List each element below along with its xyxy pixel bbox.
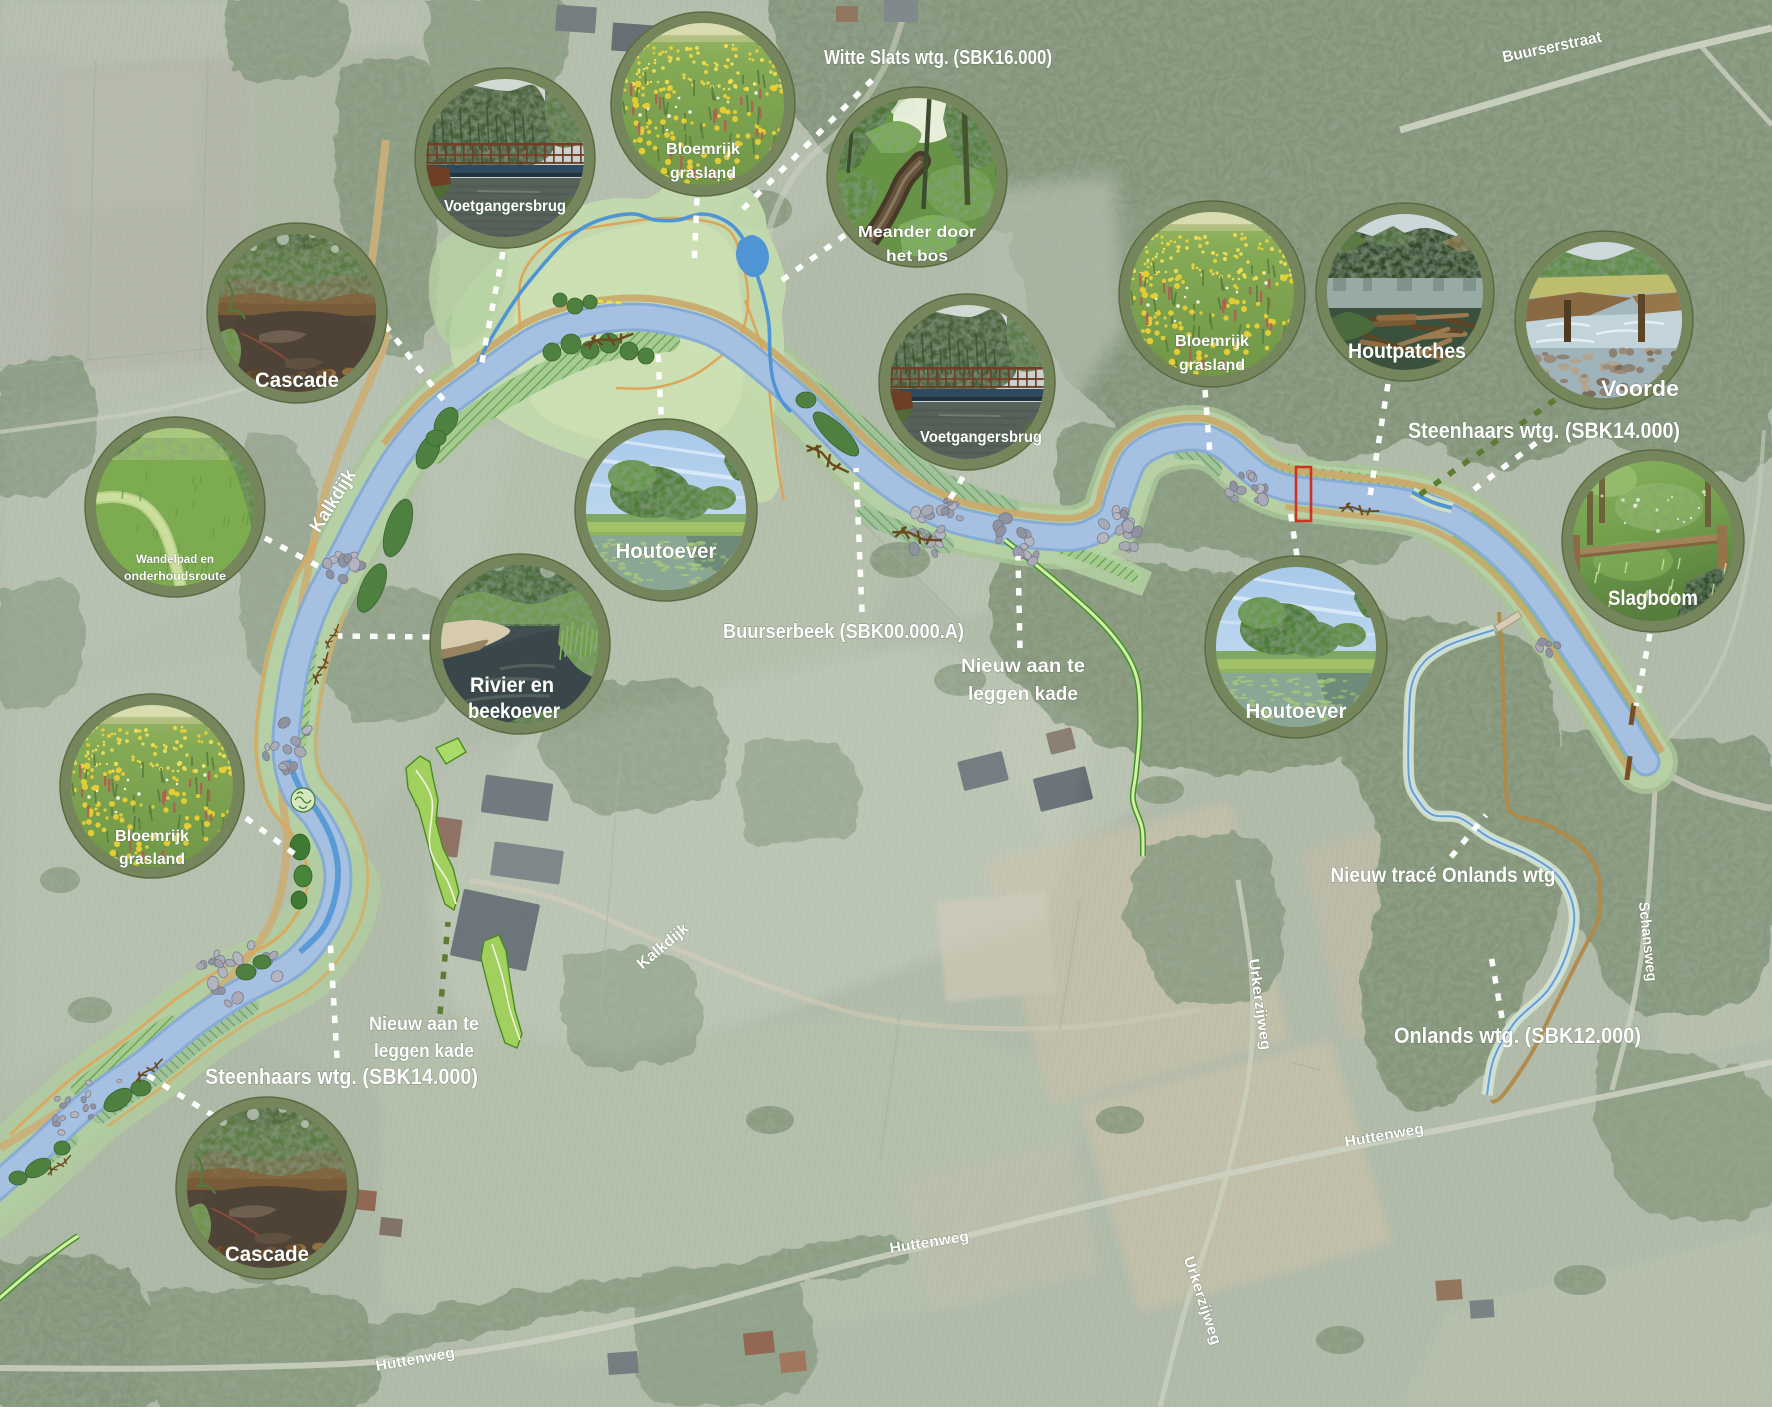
svg-text:Houtoever: Houtoever — [616, 540, 717, 563]
svg-text:Cascade: Cascade — [225, 1243, 309, 1266]
svg-text:Voorde: Voorde — [1601, 376, 1679, 401]
svg-text:grasland: grasland — [119, 851, 185, 868]
svg-text:het bos: het bos — [886, 248, 948, 265]
svg-text:Houtpatches: Houtpatches — [1348, 340, 1466, 363]
svg-text:Bloemrijk: Bloemrijk — [666, 141, 740, 158]
svg-text:Slagboom: Slagboom — [1608, 587, 1698, 610]
svg-text:leggen kade: leggen kade — [374, 1041, 474, 1062]
svg-text:Nieuw aan te: Nieuw aan te — [961, 656, 1085, 677]
svg-text:Voetgangersbrug: Voetgangersbrug — [444, 198, 566, 215]
svg-text:Bloemrijk: Bloemrijk — [1175, 333, 1249, 350]
svg-text:Nieuw aan te: Nieuw aan te — [369, 1014, 479, 1035]
svg-text:Onlands wtg. (SBK12.000): Onlands wtg. (SBK12.000) — [1394, 1023, 1641, 1048]
svg-text:Rivier en: Rivier en — [470, 674, 554, 697]
svg-text:Houtoever: Houtoever — [1246, 700, 1347, 723]
svg-text:Buurserbeek (SBK00.000.A): Buurserbeek (SBK00.000.A) — [723, 621, 964, 643]
svg-text:Bloemrijk: Bloemrijk — [115, 828, 189, 845]
svg-text:leggen kade: leggen kade — [968, 684, 1078, 705]
svg-text:Witte Slats wtg. (SBK16.000): Witte Slats wtg. (SBK16.000) — [824, 47, 1052, 69]
svg-text:Steenhaars wtg. (SBK14.000): Steenhaars wtg. (SBK14.000) — [1408, 418, 1680, 443]
svg-text:grasland: grasland — [1179, 357, 1245, 374]
svg-text:Steenhaars wtg. (SBK14.000): Steenhaars wtg. (SBK14.000) — [205, 1064, 478, 1089]
svg-text:Nieuw tracé Onlands wtg: Nieuw tracé Onlands wtg — [1331, 864, 1556, 887]
svg-text:Wandelpad en: Wandelpad en — [136, 552, 214, 566]
svg-text:Cascade: Cascade — [255, 369, 339, 392]
svg-text:onderhoudsroute: onderhoudsroute — [124, 569, 226, 583]
svg-text:Meander door: Meander door — [858, 224, 976, 241]
svg-text:grasland: grasland — [670, 165, 736, 182]
svg-text:beekoever: beekoever — [468, 700, 560, 723]
svg-text:Voetgangersbrug: Voetgangersbrug — [920, 429, 1042, 446]
